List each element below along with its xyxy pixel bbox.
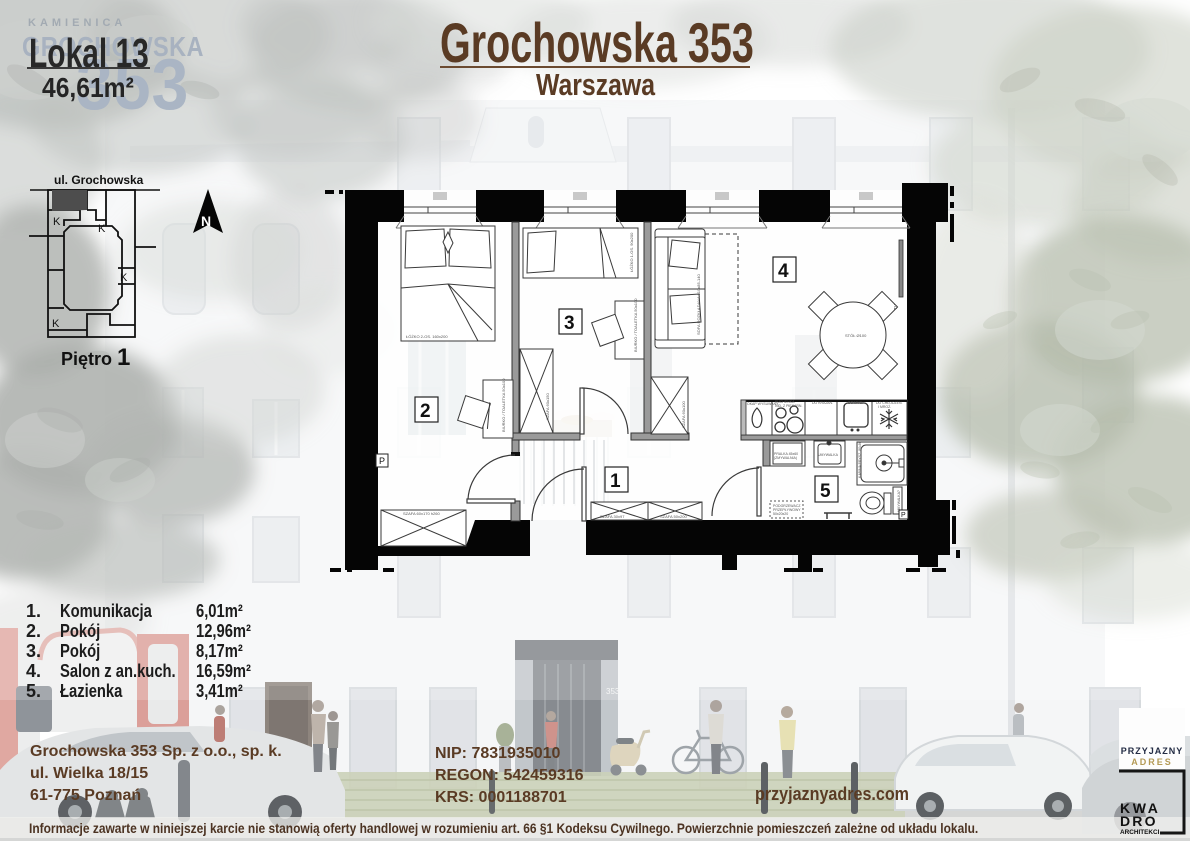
- svg-text:DO MYC.: DO MYC.: [848, 401, 863, 405]
- svg-text:UMYWALKA?: UMYWALKA?: [897, 490, 901, 512]
- svg-text:N: N: [201, 213, 211, 229]
- svg-text:2: 2: [420, 401, 431, 422]
- svg-text:3: 3: [564, 313, 575, 334]
- svg-text:IND. Z PIEKARN.: IND. Z PIEKARN.: [775, 404, 802, 408]
- svg-text:4: 4: [778, 261, 789, 282]
- svg-text:SZAFA 60x100: SZAFA 60x100: [681, 401, 686, 428]
- svg-text:K: K: [98, 223, 106, 235]
- svg-text:KABINA PRYSZ. 80x80: KABINA PRYSZ. 80x80: [858, 441, 862, 478]
- svg-text:ul. Grochowska: ul. Grochowska: [54, 173, 144, 187]
- svg-text:SZAFA 60x150: SZAFA 60x150: [545, 393, 550, 420]
- svg-text:TV: TV: [893, 304, 898, 310]
- svg-text:DO KRAJAN.: DO KRAJAN.: [812, 401, 833, 405]
- svg-text:SOFA ROZKŁADANA 210x85-140: SOFA ROZKŁADANA 210x85-140: [696, 274, 701, 335]
- svg-text:P: P: [379, 456, 385, 466]
- svg-text:K: K: [120, 272, 128, 284]
- svg-text:ŁÓŻKO 2-OS. 160x200: ŁÓŻKO 2-OS. 160x200: [406, 334, 448, 339]
- svg-text:P: P: [901, 512, 906, 519]
- svg-text:BIURKO / TOALETKA 50x100: BIURKO / TOALETKA 50x100: [633, 298, 638, 352]
- svg-text:50x20x20: 50x20x20: [773, 512, 788, 516]
- svg-text:DRO: DRO: [1120, 813, 1158, 829]
- svg-text:K: K: [53, 216, 61, 228]
- svg-text:SZAFA 60x170 h260: SZAFA 60x170 h260: [403, 511, 440, 516]
- svg-text:BIURKO / TOALETKA 50x100: BIURKO / TOALETKA 50x100: [501, 378, 506, 432]
- svg-text:5: 5: [820, 481, 831, 502]
- svg-text:K: K: [52, 318, 60, 330]
- svg-text:ŁÓŻKO 1-OS. 90x200: ŁÓŻKO 1-OS. 90x200: [629, 232, 634, 272]
- svg-text:I MROŻ.: I MROŻ.: [878, 404, 891, 409]
- svg-text:SZAFA 50x200: SZAFA 50x200: [660, 514, 687, 519]
- svg-text:UMYWALKA: UMYWALKA: [818, 453, 839, 457]
- svg-text:(ZMYWALNIA): (ZMYWALNIA): [774, 456, 797, 460]
- svg-text:Piętro 1: Piętro 1: [61, 344, 130, 371]
- svg-text:1: 1: [610, 471, 621, 492]
- svg-text:SZAFA 30x97: SZAFA 30x97: [600, 514, 625, 519]
- svg-text:ARCHITEKCI: ARCHITEKCI: [1120, 829, 1160, 836]
- svg-text:STÓŁ Ø100: STÓŁ Ø100: [845, 333, 867, 338]
